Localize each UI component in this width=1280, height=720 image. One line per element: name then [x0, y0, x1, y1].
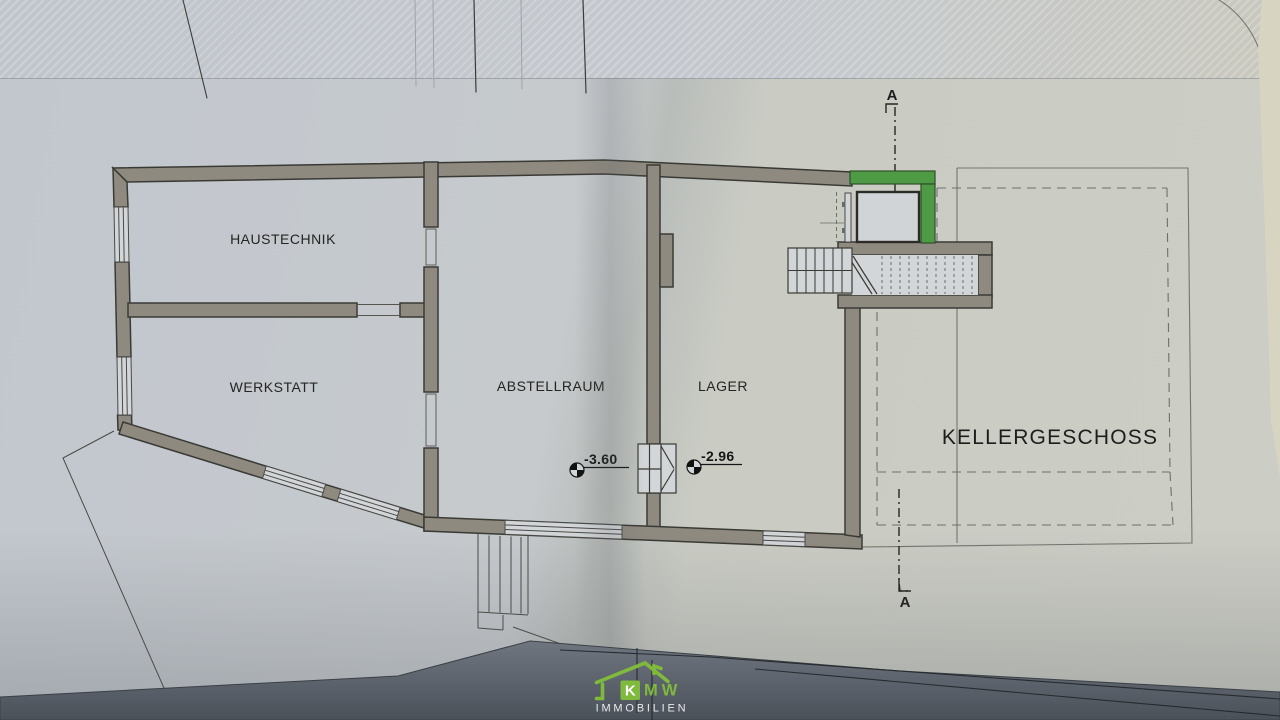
- staircase: [788, 248, 978, 295]
- window-diagonal-1: [263, 466, 326, 497]
- windows: [114, 207, 805, 547]
- logo-mw: MW: [644, 682, 681, 700]
- window-left-2: [117, 357, 132, 415]
- level-marker-2-96: -2.96: [687, 448, 742, 474]
- elevator-door: [845, 193, 851, 242]
- room-label-haustechnik: HAUSTECHNIK: [230, 231, 336, 247]
- adjacent-drawing-lines-top: [183, 0, 1273, 165]
- logo-k: K: [625, 683, 636, 700]
- floor-plan-photo: A A: [0, 0, 1280, 720]
- wall-top: [113, 160, 852, 186]
- elevator-shaft-wall-top: [850, 171, 935, 184]
- level-value: -2.96: [701, 448, 734, 464]
- elevator-shaft-wall-right: [921, 184, 935, 243]
- logo-subtitle: IMMOBILIEN: [596, 703, 689, 715]
- floor-title: KELLERGESCHOSS: [942, 426, 1158, 449]
- stair-lower-flight: [788, 248, 852, 293]
- floor-plan-drawing: A A: [0, 0, 1280, 720]
- paper-edge: [1258, 0, 1280, 478]
- room-label-werkstatt: WERKSTATT: [230, 379, 319, 395]
- elevator-car: [857, 192, 919, 242]
- window-diagonal-2: [337, 489, 400, 520]
- window-left-1: [114, 207, 129, 262]
- room-label-lager: LAGER: [698, 378, 748, 394]
- section-label-top: A: [887, 87, 898, 104]
